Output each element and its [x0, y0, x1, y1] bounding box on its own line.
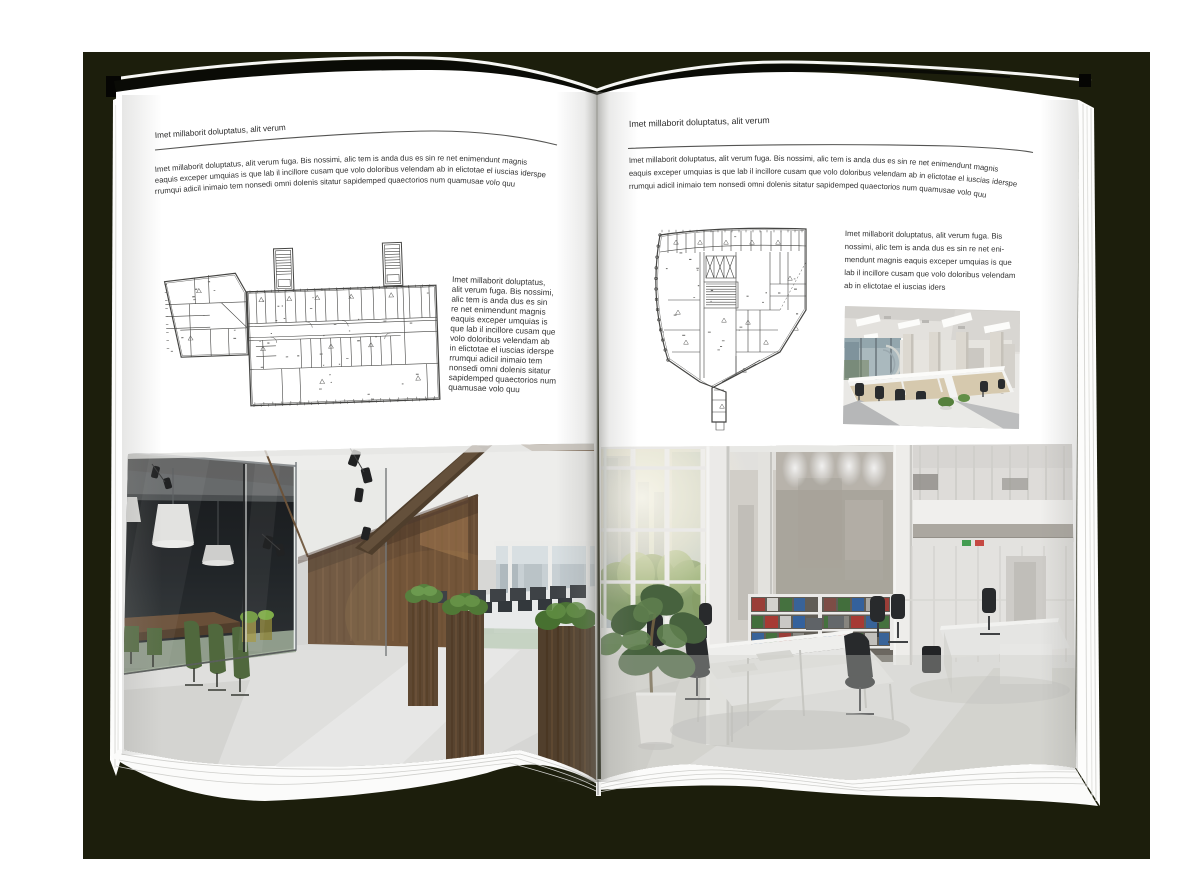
svg-text:ab in elictotae el iuscias ide: ab in elictotae el iuscias iders	[844, 281, 946, 292]
